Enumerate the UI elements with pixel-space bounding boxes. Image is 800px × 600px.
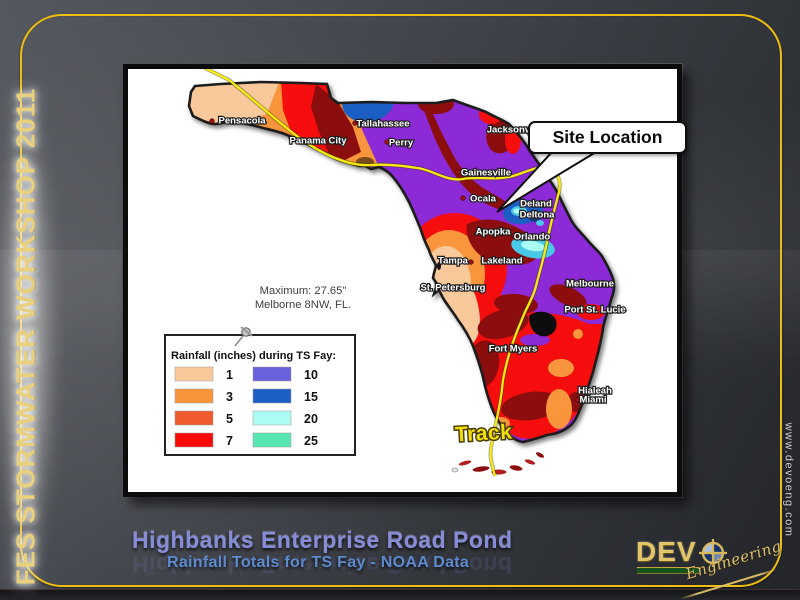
- maximum-note-line1: Maximum: 27.65": [260, 285, 347, 297]
- city-label: Ocala: [470, 194, 497, 205]
- city-label: Pensacola: [219, 116, 267, 127]
- legend-swatch: [253, 411, 291, 425]
- city-label: Orlando: [514, 232, 551, 243]
- legend-title: Rainfall (inches) during TS Fay:: [171, 350, 336, 362]
- legend-value: 1: [226, 368, 233, 382]
- legend-value: 10: [304, 368, 318, 382]
- site-location-callout: Site Location: [528, 121, 687, 154]
- city-label: Perry: [389, 138, 414, 149]
- city-dot: [456, 170, 461, 175]
- city-dot: [469, 260, 474, 265]
- city-label: Panama City: [289, 136, 347, 147]
- city-label: Miami: [580, 395, 607, 406]
- legend-value: 3: [226, 390, 233, 404]
- city-label: Apopka: [476, 227, 512, 238]
- legend-value: 7: [226, 434, 233, 448]
- legend-swatch: [253, 433, 291, 447]
- city-label: Melbourne: [566, 279, 614, 290]
- devo-engineering-logo: DEV Engineering: [636, 536, 786, 594]
- track-label: Track: [454, 421, 513, 447]
- city-label: Deland: [520, 199, 552, 210]
- legend-swatch: [175, 367, 213, 381]
- city-label: St. Petersburg: [421, 283, 486, 294]
- city-label: Tampa: [438, 256, 469, 267]
- page-title: Highbanks Enterprise Road Pond: [132, 527, 513, 554]
- city-label: Tallahassee: [356, 119, 409, 130]
- city-label: Deltona: [520, 210, 556, 221]
- legend-swatch: [175, 411, 213, 425]
- legend-swatch: [175, 389, 213, 403]
- city-dot: [210, 119, 215, 124]
- city-dot: [461, 196, 466, 201]
- legend-value: 20: [304, 412, 318, 426]
- legend-swatch: [253, 389, 291, 403]
- legend-value: 25: [304, 434, 318, 448]
- slide: FES STORMWATER WORKSHOP 2011 www.devoeng…: [0, 0, 800, 600]
- city-label: Fort Myers: [489, 344, 538, 355]
- florida-keys: [452, 450, 546, 475]
- maximum-note-line2: Melborne 8NW, FL.: [255, 299, 351, 311]
- legend-value: 5: [226, 412, 233, 426]
- legend: Rainfall (inches) during TS Fay: 1357101…: [165, 327, 355, 455]
- city-label: Gainesville: [461, 168, 511, 179]
- legend-swatch: [253, 367, 291, 381]
- website-url: www.devoeng.com: [783, 408, 795, 553]
- page-subtitle: Rainfall Totals for TS Fay - NOAA Data: [167, 554, 469, 572]
- legend-value: 15: [304, 390, 318, 404]
- city-label: Port St. Lucie: [564, 305, 625, 316]
- workshop-banner: FES STORMWATER WORKSHOP 2011: [11, 77, 42, 597]
- legend-swatch: [175, 433, 213, 447]
- devo-wordmark: DEV: [636, 536, 697, 568]
- city-label: Lakeland: [481, 256, 522, 267]
